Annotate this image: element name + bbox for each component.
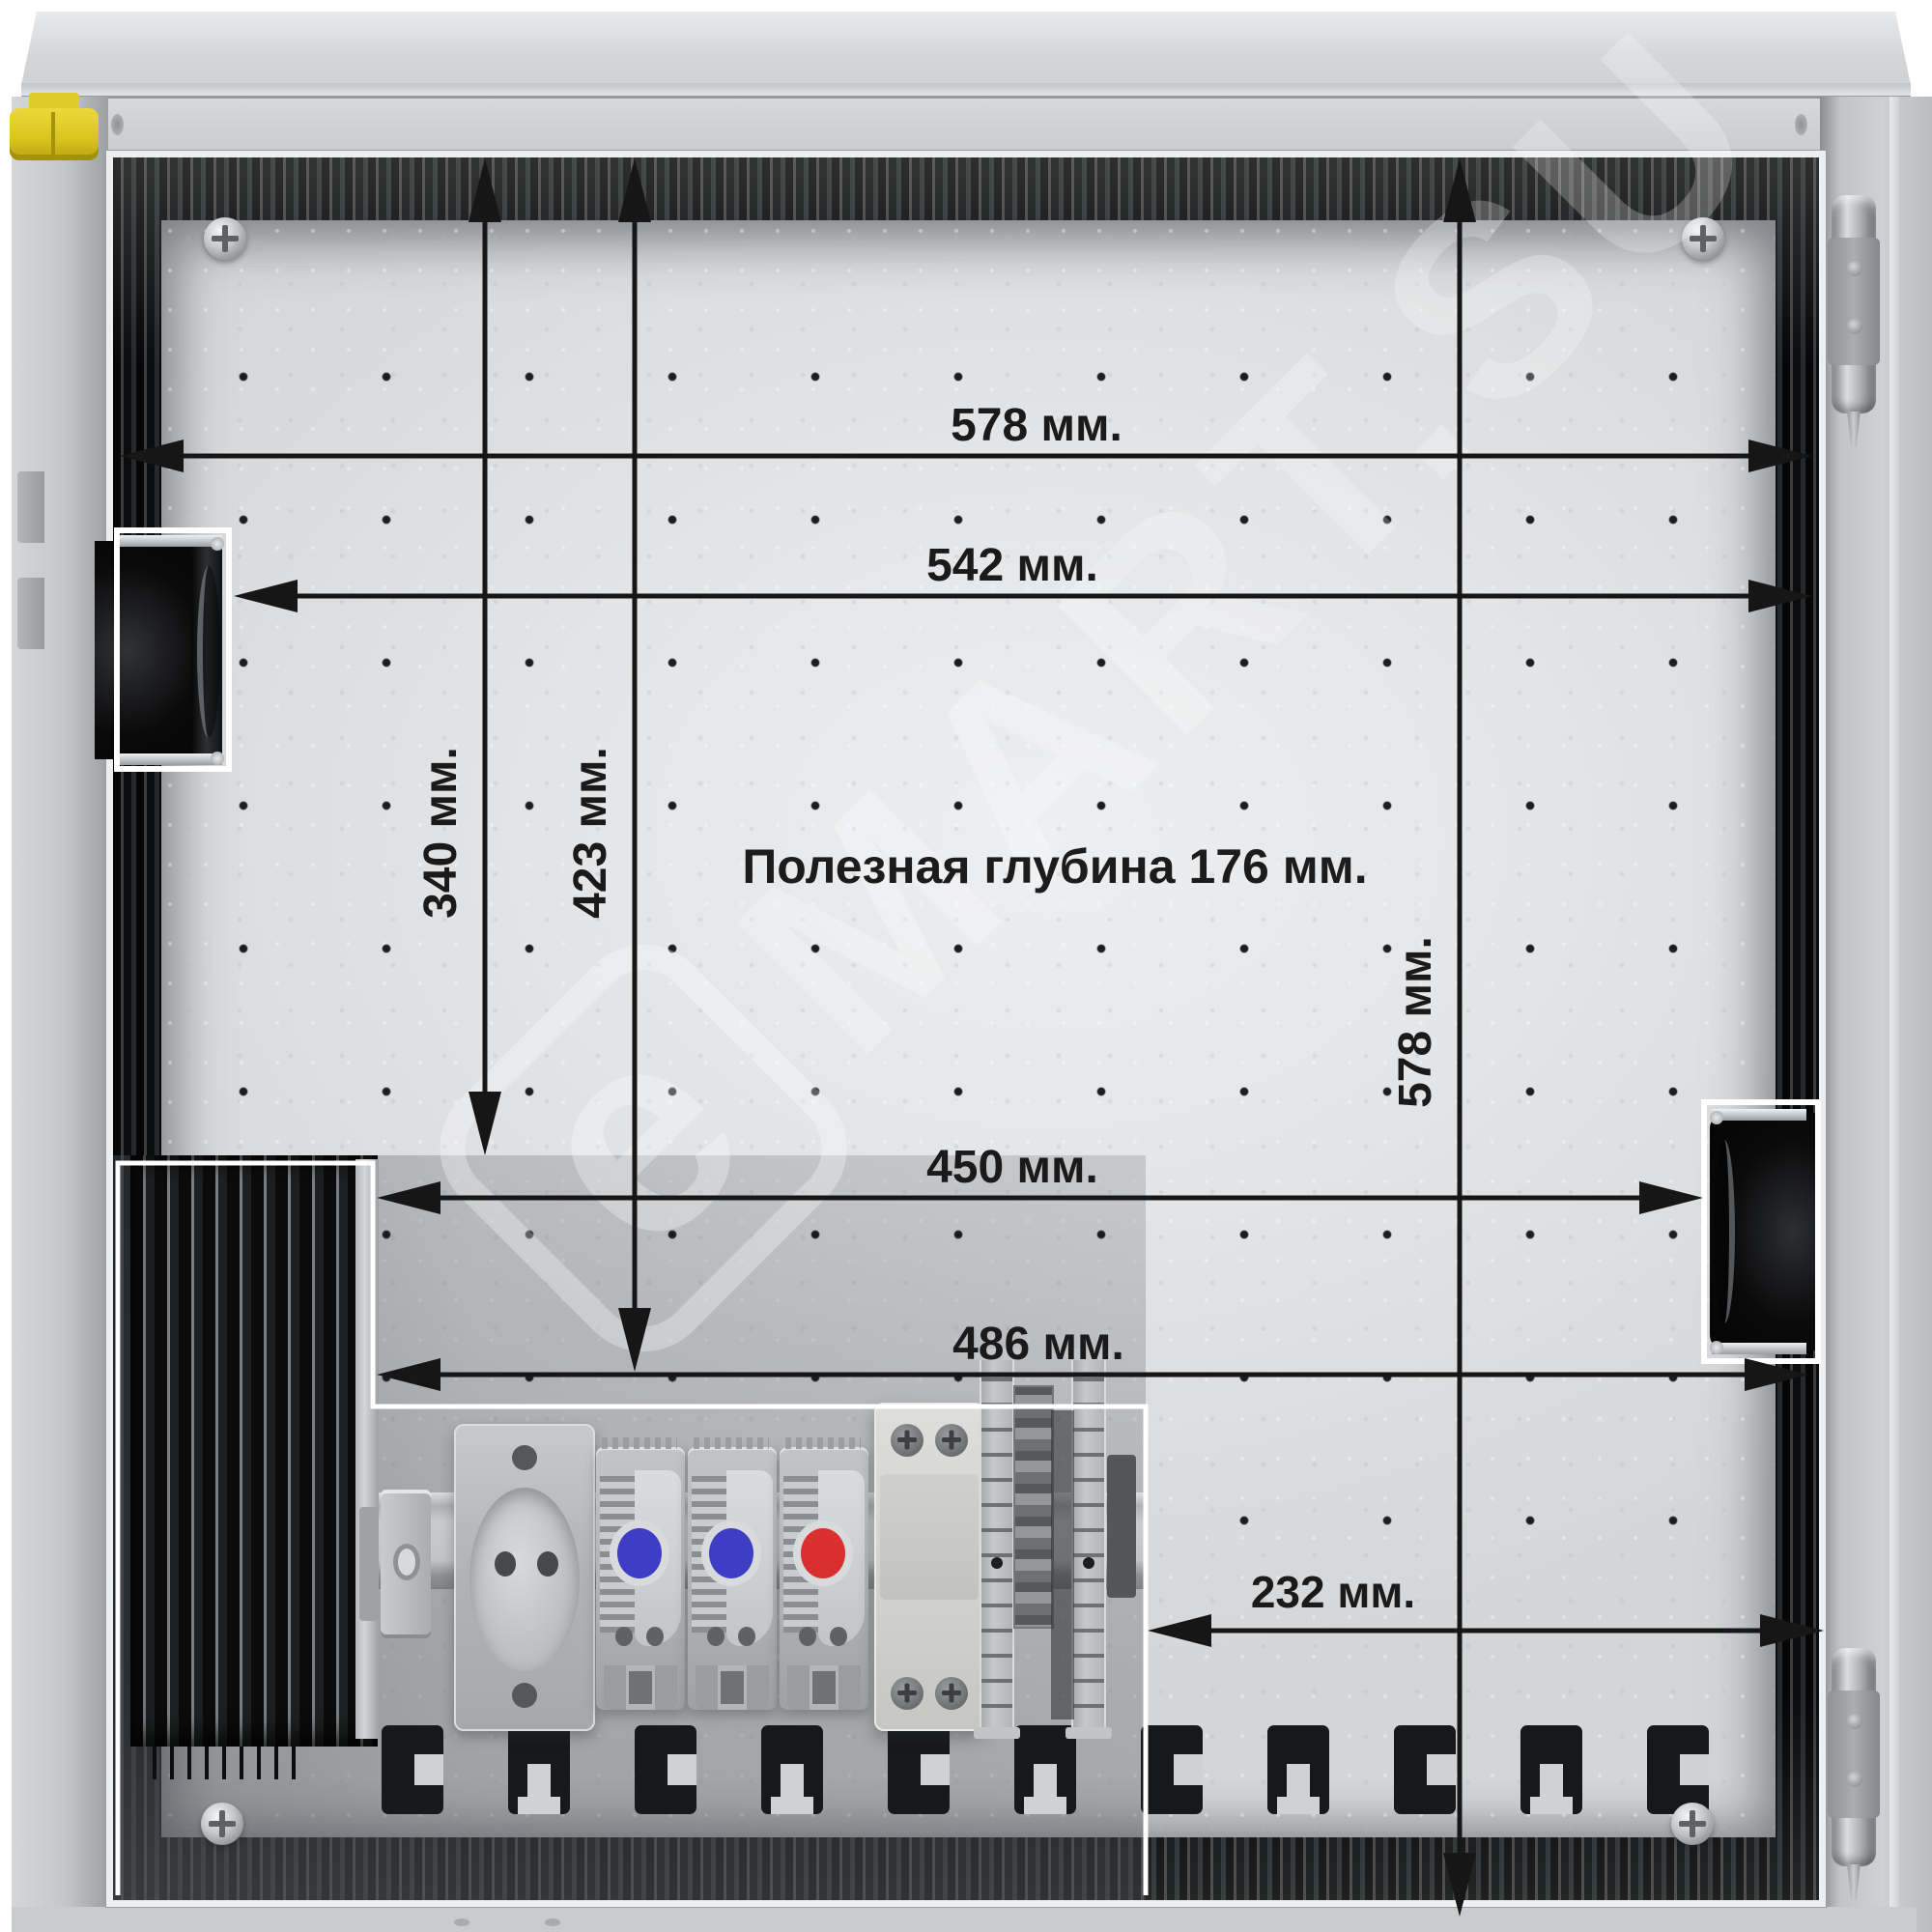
dim-label: 450 мм. <box>926 1142 1098 1193</box>
dim-label: 578 мм. <box>951 400 1122 451</box>
useful-depth-note: Полезная глубина 176 мм. <box>742 839 1367 894</box>
enclosure-internal-view: e MART.SU <box>0 0 1932 1932</box>
dim-label: 578 мм. <box>1390 936 1441 1108</box>
equipment-zone-outline <box>118 1163 1146 1895</box>
dim-rail-zone-width: 486 мм. <box>377 1319 1808 1391</box>
dim-label: 542 мм. <box>926 540 1098 591</box>
dim-plate-width-top: 578 мм. <box>120 400 1812 472</box>
dimension-overlay: 578 мм. 542 мм. 340 мм. 423 мм. <box>0 0 1932 1932</box>
left-fan-outline <box>117 530 229 769</box>
dim-height-to-rail-zone: 423 мм. <box>565 158 651 1372</box>
right-fan-outline <box>1704 1102 1818 1361</box>
dim-label: 486 мм. <box>952 1319 1124 1370</box>
dim-heatsink-to-fan-width: 450 мм. <box>377 1142 1703 1214</box>
dim-height-to-heatsink: 340 мм. <box>415 158 501 1155</box>
dim-label: 423 мм. <box>565 747 616 919</box>
dim-label: 232 мм. <box>1251 1567 1415 1617</box>
dim-right-clearance-width: 232 мм. <box>1148 1567 1824 1647</box>
dim-plate-height-right: 578 мм. <box>1390 158 1476 1917</box>
dim-label: 340 мм. <box>415 747 467 919</box>
dim-fan-to-wall-width: 542 мм. <box>234 540 1812 612</box>
